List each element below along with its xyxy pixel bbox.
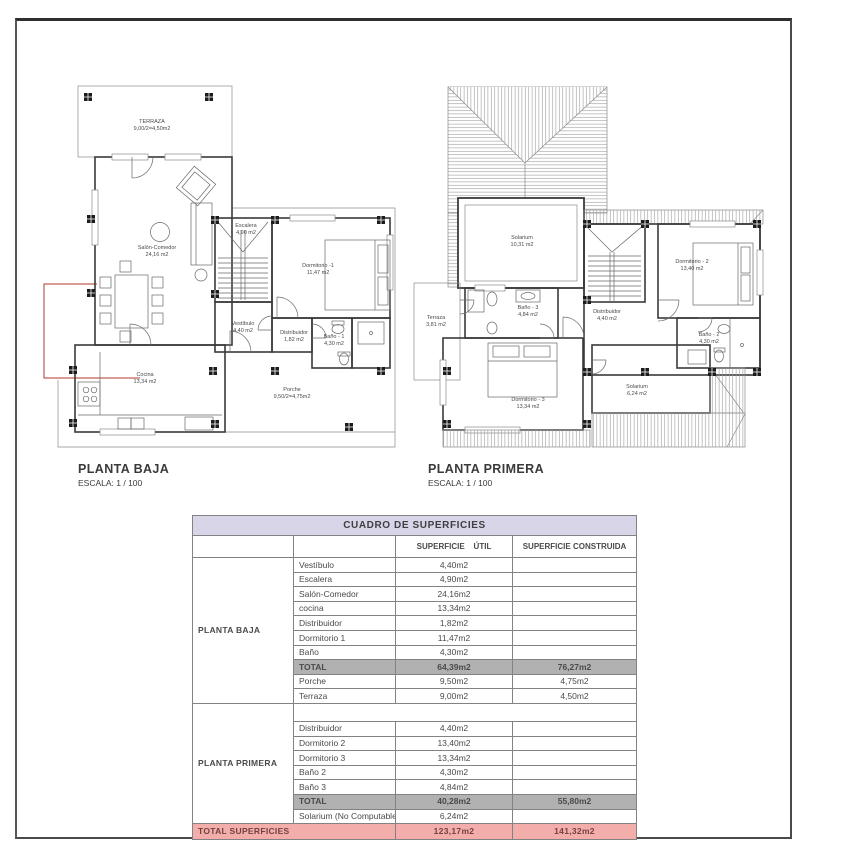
plan-sheet-page: { "colors": { "table_header_bg": "#d8d5e… (0, 0, 842, 844)
room-label-solarium-bottom: Solarium (626, 384, 648, 390)
plan-planta-primera: Solarium 10,31 m2 Terraza 3,81 m2 Baño -… (414, 87, 763, 447)
table-title: CUADRO DE SUPERFICIES (193, 516, 637, 536)
room-label-bano2: Baño - 2 (699, 332, 720, 338)
svg-text:4,40 m2: 4,40 m2 (233, 328, 253, 334)
structural-columns-baja (69, 93, 385, 431)
table-spacer-row: PLANTA PRIMERA (193, 703, 637, 721)
armchair-icon (176, 166, 215, 205)
kitchen-fixtures (78, 352, 222, 430)
svg-text:13,34 m2: 13,34 m2 (134, 379, 157, 385)
porch-edge (225, 352, 395, 432)
room-label-cocina: Cocina (136, 372, 154, 378)
dining-table-icon (100, 261, 163, 342)
room-label-bano3: Baño - 3 (518, 305, 539, 311)
table-header-row: SUPERFICIE ÚTIL SUPERFICIE CONSTRUIDA (193, 536, 637, 558)
plan-title-primera-text: PLANTA PRIMERA (428, 462, 544, 476)
svg-text:9,00/2=4,50m2: 9,00/2=4,50m2 (134, 126, 171, 132)
plan-title-baja: PLANTA BAJA ESCALA: 1 / 100 (78, 462, 169, 488)
bed-icon-dormitorio2 (693, 243, 753, 305)
svg-text:6,24 m2: 6,24 m2 (627, 391, 647, 397)
plan-planta-baja: TERRAZA 9,00/2=4,50m2 Salón-Comedor 24,1… (44, 86, 395, 447)
table-grand-total-row: TOTAL SUPERFICIES 123,17m2 141,32m2 (193, 824, 637, 840)
room-label-bano1: Baño - 1 (324, 334, 345, 340)
svg-text:1,82 m2: 1,82 m2 (284, 337, 304, 343)
svg-text:3,81 m2: 3,81 m2 (426, 322, 446, 328)
svg-text:4,30 m2: 4,30 m2 (699, 339, 719, 345)
staircase-icon-primera (584, 224, 645, 302)
doors-primera (460, 300, 712, 374)
room-label-dormitorio2: Dormitorio - 2 (675, 259, 708, 265)
bed-icon-dormitorio3 (488, 343, 557, 397)
roof-band-topright (584, 210, 763, 224)
room-label-terraza-p1: Terraza (427, 315, 446, 321)
surfaces-table: CUADRO DE SUPERFICIES SUPERFICIE ÚTIL SU… (192, 515, 637, 840)
svg-text:4,30 m2: 4,30 m2 (324, 341, 344, 347)
plan-title-baja-text: PLANTA BAJA (78, 462, 169, 476)
grand-total-label: TOTAL SUPERFICIES (193, 824, 396, 840)
bed-icon-dormitorio1 (325, 240, 390, 310)
svg-text:4,84 m2: 4,84 m2 (518, 312, 538, 318)
plan-title-primera: PLANTA PRIMERA ESCALA: 1 / 100 (428, 462, 544, 488)
col-header-util: SUPERFICIE ÚTIL (396, 536, 513, 558)
room-label-distribuidor: Distribuidor (280, 330, 308, 336)
room-label-escalera: Escalera (235, 223, 257, 229)
group-label-planta-baja: PLANTA BAJA (193, 558, 294, 704)
sofa-icon (191, 203, 212, 265)
round-table-icon (151, 223, 170, 242)
svg-text:13,34 m2: 13,34 m2 (517, 404, 540, 410)
room-label-solarium-top: Solarium (511, 235, 533, 241)
table-row: PLANTA BAJA Vestíbulo 4,40m2 (193, 558, 637, 573)
room-label-distribuidor-p1: Distribuidor (593, 309, 621, 315)
col-header-construida: SUPERFICIE CONSTRUIDA (513, 536, 637, 558)
svg-text:10,31 m2: 10,31 m2 (511, 242, 534, 248)
room-label-salon: Salón-Comedor (138, 245, 177, 251)
group-label-planta-primera: PLANTA PRIMERA (193, 703, 294, 823)
windows-baja (92, 154, 393, 435)
room-label-dormitorio3: Dormitorio - 3 (511, 397, 544, 403)
plan-scale-primera: ESCALA: 1 / 100 (428, 478, 544, 488)
plan-scale-baja: ESCALA: 1 / 100 (78, 478, 169, 488)
outer-boundary (58, 208, 395, 447)
room-label-terraza: TERRAZA (139, 119, 165, 125)
svg-text:13,40 m2: 13,40 m2 (681, 266, 704, 272)
svg-text:4,90 m2: 4,90 m2 (236, 230, 256, 236)
svg-text:9,50/2=4,75m2: 9,50/2=4,75m2 (274, 394, 311, 400)
room-label-dormitorio1: Dormitorio -1 (302, 263, 334, 269)
svg-text:4,40 m2: 4,40 m2 (597, 316, 617, 322)
table-title-row: CUADRO DE SUPERFICIES (193, 516, 637, 536)
svg-text:24,16 m2: 24,16 m2 (146, 252, 169, 258)
side-table-icon (195, 269, 207, 281)
room-label-porche: Porche (283, 387, 300, 393)
room-label-vestibulo: Vestíbulo (232, 321, 255, 327)
walls-baja (75, 157, 390, 432)
svg-text:11,47 m2: 11,47 m2 (307, 270, 330, 276)
